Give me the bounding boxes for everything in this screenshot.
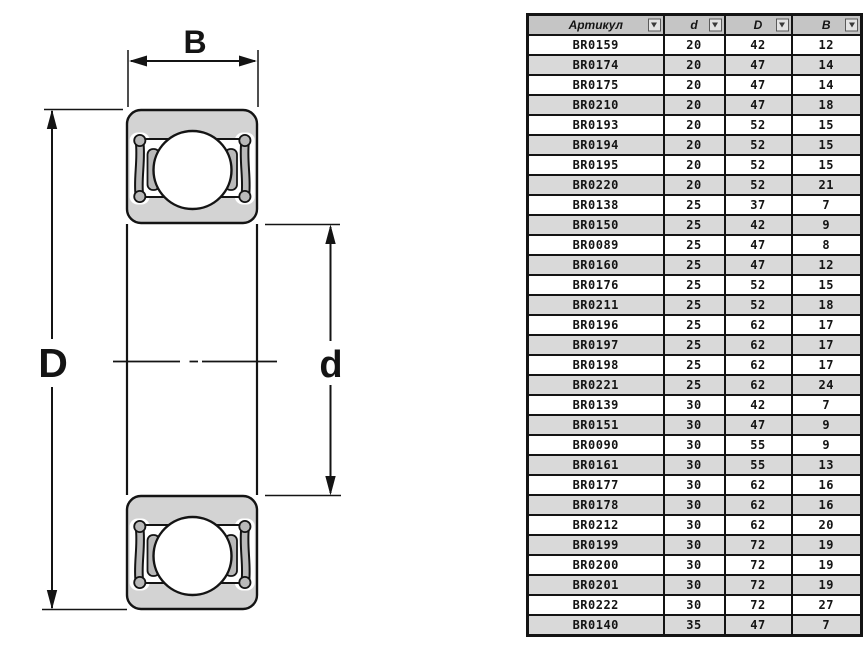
cell-article: BR0175 (528, 75, 664, 95)
cell-article: BR0138 (528, 195, 664, 215)
cell-dimension: 47 (725, 255, 792, 275)
cell-dimension: 27 (792, 595, 862, 615)
cell-dimension: 15 (792, 115, 862, 135)
column-header-B: B (792, 15, 862, 36)
cell-dimension: 9 (792, 215, 862, 235)
cell-article: BR0160 (528, 255, 664, 275)
arrowhead-down (47, 590, 57, 610)
cell-dimension: 12 (792, 35, 862, 55)
cell-dimension: 52 (725, 175, 792, 195)
cell-dimension: 72 (725, 575, 792, 595)
cell-dimension: 16 (792, 475, 862, 495)
cell-dimension: 37 (725, 195, 792, 215)
cell-dimension: 62 (725, 355, 792, 375)
chevron-down-icon (779, 23, 785, 28)
cell-article: BR0197 (528, 335, 664, 355)
table-body: BR0159204212BR0174204714BR0175204714BR02… (528, 35, 862, 636)
table-row: BR0197256217 (528, 335, 862, 355)
table-row: BR0198256217 (528, 355, 862, 375)
table-row: BR014035477 (528, 615, 862, 636)
cell-dimension: 15 (792, 135, 862, 155)
cell-dimension: 25 (664, 215, 725, 235)
cell-article: BR0221 (528, 375, 664, 395)
table-row: BR008925478 (528, 235, 862, 255)
column-header-B-label: B (822, 18, 831, 32)
cell-dimension: 8 (792, 235, 862, 255)
cell-article: BR0150 (528, 215, 664, 235)
table-row: BR013825377 (528, 195, 862, 215)
cell-dimension: 20 (664, 95, 725, 115)
table-row: BR0222307227 (528, 595, 862, 615)
dimension-B: B (128, 24, 258, 107)
column-header-D: D (725, 15, 792, 36)
table-row: BR0177306216 (528, 475, 862, 495)
column-header-article-label: Артикул (569, 18, 623, 32)
table-row: BR0199307219 (528, 535, 862, 555)
table-row: BR0210204718 (528, 95, 862, 115)
cell-dimension: 25 (664, 335, 725, 355)
cell-dimension: 19 (792, 535, 862, 555)
table-row: BR0196256217 (528, 315, 862, 335)
cell-dimension: 30 (664, 515, 725, 535)
cell-dimension: 35 (664, 615, 725, 636)
cell-dimension: 72 (725, 535, 792, 555)
chevron-down-icon (849, 23, 855, 28)
table-row: BR0195205215 (528, 155, 862, 175)
cell-dimension: 47 (725, 235, 792, 255)
cell-dimension: 21 (792, 175, 862, 195)
cell-dimension: 62 (725, 315, 792, 335)
cell-dimension: 62 (725, 375, 792, 395)
cell-dimension: 25 (664, 275, 725, 295)
cell-dimension: 30 (664, 395, 725, 415)
bearing-section-bottom (127, 496, 257, 609)
cell-dimension: 47 (725, 615, 792, 636)
cell-dimension: 30 (664, 495, 725, 515)
cell-dimension: 55 (725, 455, 792, 475)
cell-dimension: 30 (664, 595, 725, 615)
cell-dimension: 62 (725, 515, 792, 535)
cell-dimension: 25 (664, 355, 725, 375)
cell-dimension: 72 (725, 595, 792, 615)
header-row: Артикул d D B (528, 15, 862, 36)
table-row: BR0211255218 (528, 295, 862, 315)
cell-dimension: 14 (792, 75, 862, 95)
label-bore-diameter-d: d (319, 344, 342, 386)
filter-dropdown-button[interactable] (845, 19, 858, 32)
column-header-d: d (664, 15, 725, 36)
arrowhead-left (129, 56, 147, 67)
filter-dropdown-button[interactable] (776, 19, 789, 32)
cell-dimension: 15 (792, 155, 862, 175)
cell-article: BR0090 (528, 435, 664, 455)
cell-dimension: 7 (792, 615, 862, 636)
cell-article: BR0200 (528, 555, 664, 575)
table-row: BR0161305513 (528, 455, 862, 475)
cell-dimension: 7 (792, 195, 862, 215)
cell-article: BR0212 (528, 515, 664, 535)
cell-dimension: 15 (792, 275, 862, 295)
cell-dimension: 42 (725, 35, 792, 55)
cell-dimension: 47 (725, 415, 792, 435)
cell-article: BR0139 (528, 395, 664, 415)
cell-dimension: 7 (792, 395, 862, 415)
cell-dimension: 47 (725, 95, 792, 115)
table-row: BR0178306216 (528, 495, 862, 515)
cell-dimension: 30 (664, 575, 725, 595)
table-row: BR0212306220 (528, 515, 862, 535)
cell-dimension: 17 (792, 315, 862, 335)
cell-dimension: 9 (792, 435, 862, 455)
cell-dimension: 25 (664, 195, 725, 215)
cell-dimension: 55 (725, 435, 792, 455)
cell-dimension: 47 (725, 55, 792, 75)
cell-article: BR0211 (528, 295, 664, 315)
arrowhead-up (47, 110, 57, 130)
cell-dimension: 17 (792, 335, 862, 355)
cell-dimension: 18 (792, 295, 862, 315)
cell-article: BR0174 (528, 55, 664, 75)
column-header-D-label: D (754, 18, 763, 32)
cell-dimension: 20 (664, 135, 725, 155)
table-row: BR0194205215 (528, 135, 862, 155)
table-row: BR0200307219 (528, 555, 862, 575)
table-row: BR0176255215 (528, 275, 862, 295)
table-row: BR0174204714 (528, 55, 862, 75)
cell-dimension: 19 (792, 555, 862, 575)
cell-dimension: 20 (664, 55, 725, 75)
cell-dimension: 16 (792, 495, 862, 515)
cell-dimension: 30 (664, 475, 725, 495)
table-row: BR015025429 (528, 215, 862, 235)
cell-dimension: 25 (664, 235, 725, 255)
cell-article: BR0177 (528, 475, 664, 495)
cell-dimension: 42 (725, 215, 792, 235)
cell-article: BR0089 (528, 235, 664, 255)
cell-dimension: 14 (792, 55, 862, 75)
cell-dimension: 30 (664, 435, 725, 455)
cell-dimension: 62 (725, 335, 792, 355)
cell-dimension: 12 (792, 255, 862, 275)
cell-dimension: 17 (792, 355, 862, 375)
cell-dimension: 20 (664, 35, 725, 55)
cell-article: BR0222 (528, 595, 664, 615)
label-width-B: B (183, 24, 206, 60)
label-outer-diameter-D: D (38, 340, 68, 386)
cell-article: BR0210 (528, 95, 664, 115)
cell-dimension: 30 (664, 535, 725, 555)
cell-dimension: 13 (792, 455, 862, 475)
table-row: BR0201307219 (528, 575, 862, 595)
cell-article: BR0151 (528, 415, 664, 435)
arrowhead-up (325, 225, 335, 245)
cell-article: BR0196 (528, 315, 664, 335)
table-row: BR0193205215 (528, 115, 862, 135)
cell-article: BR0198 (528, 355, 664, 375)
cell-dimension: 52 (725, 295, 792, 315)
cell-dimension: 62 (725, 475, 792, 495)
table-row: BR015130479 (528, 415, 862, 435)
cell-dimension: 52 (725, 135, 792, 155)
cell-dimension: 20 (664, 155, 725, 175)
cell-dimension: 25 (664, 375, 725, 395)
column-header-article: Артикул (528, 15, 664, 36)
cell-dimension: 18 (792, 95, 862, 115)
bearing-parts-table: Артикул d D B BR0159204212BR0174204714BR… (526, 13, 863, 637)
table-row: BR013930427 (528, 395, 862, 415)
parts-table: Артикул d D B BR0159204212BR0174204714BR… (526, 13, 863, 637)
table-row: BR0159204212 (528, 35, 862, 55)
cell-dimension: 30 (664, 455, 725, 475)
dimension-D: D (38, 110, 127, 610)
bearing-diagram: B D d (0, 0, 420, 650)
cell-dimension: 47 (725, 75, 792, 95)
dimension-d: d (265, 225, 343, 496)
cell-article: BR0220 (528, 175, 664, 195)
arrowhead-right (239, 56, 257, 67)
table-row: BR009030559 (528, 435, 862, 455)
column-header-d-label: d (690, 18, 697, 32)
cell-dimension: 20 (664, 175, 725, 195)
cell-dimension: 72 (725, 555, 792, 575)
filter-dropdown-button[interactable] (648, 19, 661, 32)
cell-dimension: 24 (792, 375, 862, 395)
cell-dimension: 25 (664, 255, 725, 275)
chevron-down-icon (651, 23, 657, 28)
table-row: BR0175204714 (528, 75, 862, 95)
cell-article: BR0176 (528, 275, 664, 295)
filter-dropdown-button[interactable] (709, 19, 722, 32)
cell-dimension: 30 (664, 415, 725, 435)
arrowhead-down (325, 476, 335, 496)
cell-dimension: 20 (664, 115, 725, 135)
cell-dimension: 9 (792, 415, 862, 435)
cell-dimension: 25 (664, 295, 725, 315)
cell-article: BR0178 (528, 495, 664, 515)
bearing-section-top (127, 110, 257, 223)
cell-dimension: 30 (664, 555, 725, 575)
cell-dimension: 20 (664, 75, 725, 95)
chevron-down-icon (712, 23, 718, 28)
table-row: BR0160254712 (528, 255, 862, 275)
cell-dimension: 20 (792, 515, 862, 535)
cell-dimension: 62 (725, 495, 792, 515)
cell-dimension: 52 (725, 275, 792, 295)
cell-article: BR0195 (528, 155, 664, 175)
cell-dimension: 52 (725, 115, 792, 135)
cell-dimension: 52 (725, 155, 792, 175)
cell-article: BR0159 (528, 35, 664, 55)
cell-dimension: 42 (725, 395, 792, 415)
table-row: BR0221256224 (528, 375, 862, 395)
cell-dimension: 25 (664, 315, 725, 335)
cell-article: BR0140 (528, 615, 664, 636)
cell-article: BR0193 (528, 115, 664, 135)
cell-dimension: 19 (792, 575, 862, 595)
cell-article: BR0201 (528, 575, 664, 595)
table-row: BR0220205221 (528, 175, 862, 195)
cell-article: BR0161 (528, 455, 664, 475)
cell-article: BR0199 (528, 535, 664, 555)
cell-article: BR0194 (528, 135, 664, 155)
